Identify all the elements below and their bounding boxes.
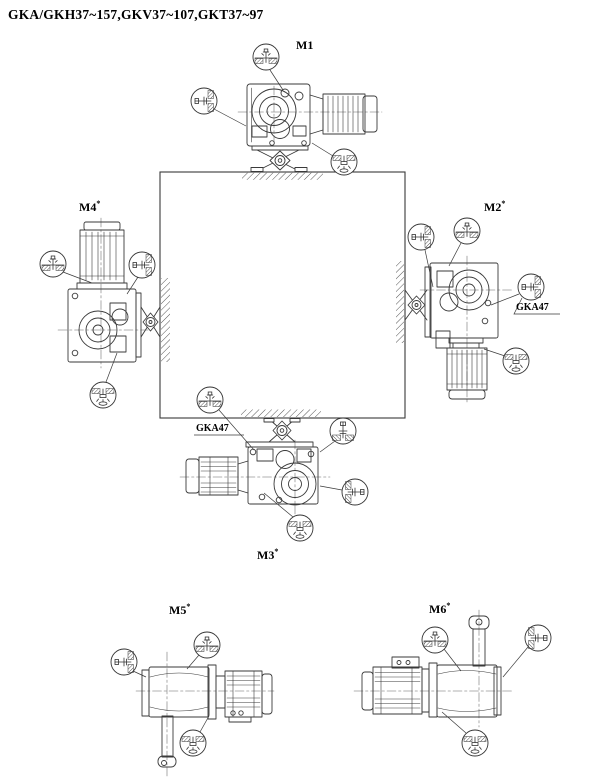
oil-level-plug-icon: [330, 418, 356, 444]
oil-level-plug-icon: [342, 479, 368, 505]
m4-callouts: [40, 251, 155, 408]
gka47-note-m2: GKA47: [516, 302, 549, 313]
view-label-m3: M3*: [257, 547, 278, 563]
floor-hatch-top: [242, 173, 323, 180]
view-label-m2: M2*: [484, 199, 505, 215]
m5-gearmotor-drawing: [136, 652, 274, 776]
view-label-m1: M1: [296, 37, 313, 53]
diagram-canvas: [0, 0, 600, 783]
oil-level-plug-icon: [518, 274, 544, 300]
oil-drain-plug-icon: [331, 149, 357, 175]
gka47-note-m3: GKA47: [196, 423, 229, 434]
oil-drain-plug-icon: [503, 348, 529, 374]
oil-drain-plug-icon: [90, 382, 116, 408]
oil-level-plug-icon: [129, 252, 155, 278]
oil-level-plug-icon: [111, 649, 137, 675]
wall-hatch-left: [161, 278, 170, 362]
mounting-frame: [160, 172, 405, 418]
view-label-m4: M4*: [79, 199, 100, 215]
oil-level-plug-icon: [408, 224, 434, 250]
oil-drain-plug-icon: [287, 515, 313, 541]
mounting-position-diagram: GKA/GKH37~157,GKV37~107,GKT37~97 M1 M2* …: [0, 0, 600, 783]
m2-gearmotor-drawing: [405, 256, 512, 402]
view-label-m5: M5*: [169, 602, 190, 618]
m6-callouts: [422, 625, 551, 756]
breather-plug-icon: [40, 251, 66, 277]
oil-level-plug-icon: [525, 625, 551, 651]
breather-plug-icon: [454, 218, 480, 244]
oil-level-plug-icon: [191, 88, 217, 114]
breather-plug-icon: [422, 627, 448, 653]
oil-drain-plug-icon: [180, 730, 206, 756]
wall-hatch-right: [396, 261, 404, 343]
page-title: GKA/GKH37~157,GKV37~107,GKT37~97: [8, 7, 263, 23]
m4-gearmotor-drawing: [58, 218, 160, 368]
view-label-m6: M6*: [429, 601, 450, 617]
breather-plug-icon: [197, 387, 223, 413]
m1-gearmotor-drawing: [238, 84, 382, 172]
breather-plug-icon: [194, 632, 220, 658]
oil-drain-plug-icon: [462, 730, 488, 756]
m5-callouts: [111, 632, 220, 756]
ceiling-hatch-bottom: [241, 410, 321, 418]
breather-plug-icon: [253, 44, 279, 70]
